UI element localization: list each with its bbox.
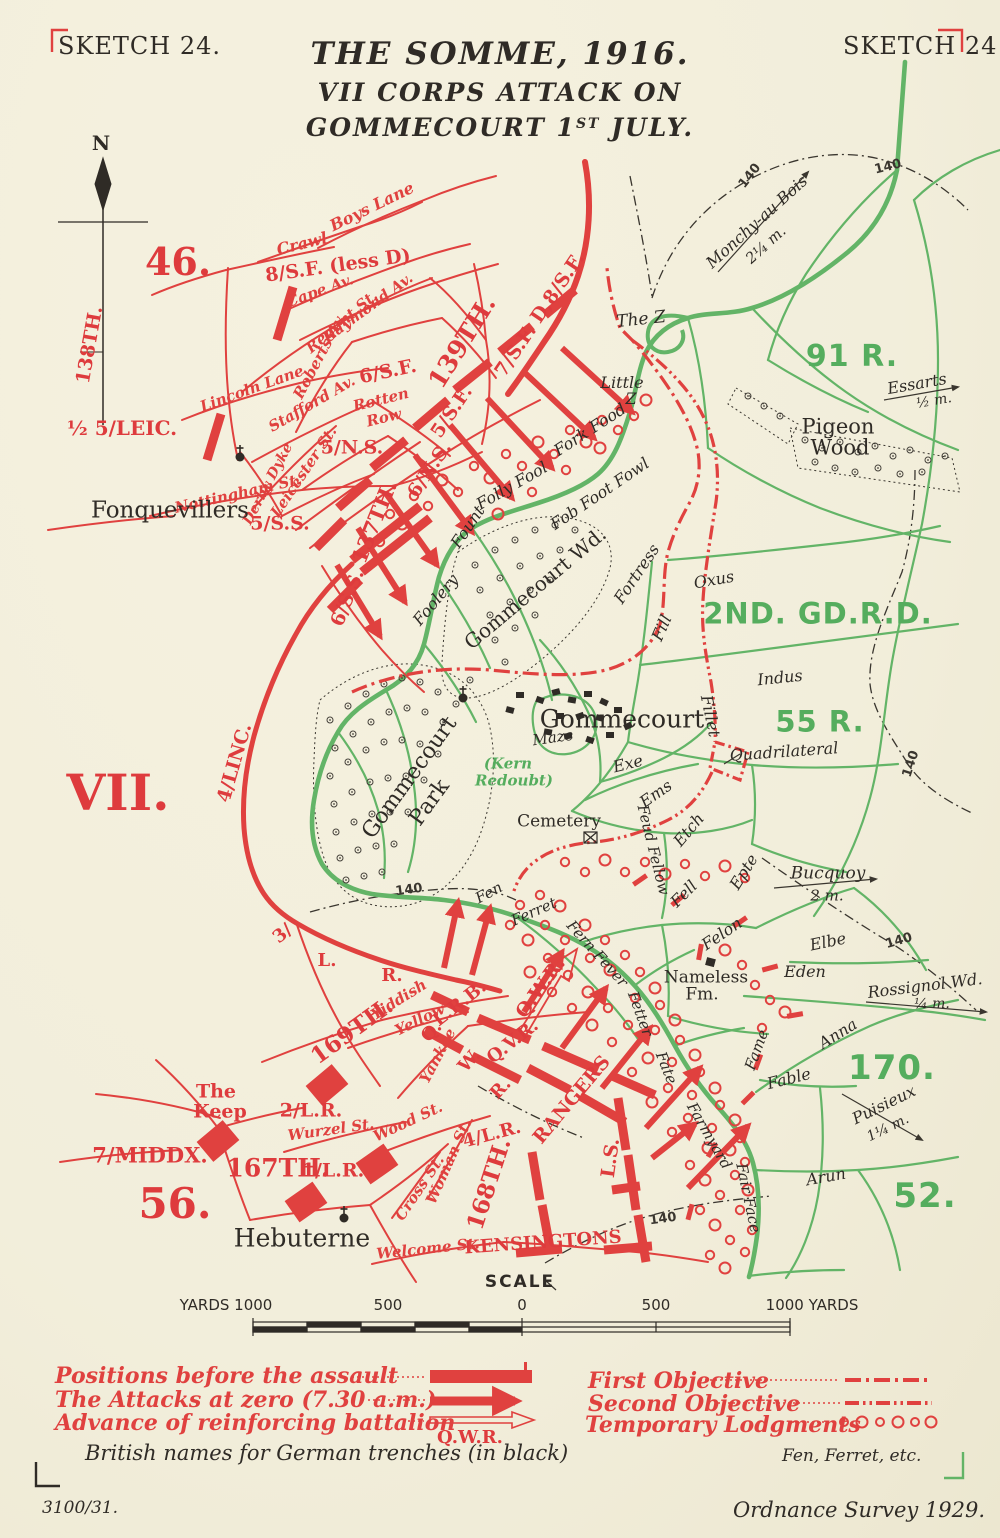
lodgment-circle <box>621 951 629 959</box>
lodgment-circle <box>583 987 594 998</box>
tree-dot <box>455 703 457 705</box>
map-label-eden: Eden <box>784 964 826 980</box>
tree-dot <box>504 661 506 663</box>
tree-dot <box>383 683 385 685</box>
british-road <box>226 268 238 460</box>
tree-dot <box>347 761 349 763</box>
lodgment-circle <box>561 858 569 866</box>
legend-black-names-note: British names for German trenches (in bl… <box>85 1441 568 1465</box>
map-label-vii: VII. <box>67 768 170 818</box>
german-road <box>814 200 938 916</box>
tree-dot <box>519 565 521 567</box>
german-road <box>674 1028 744 1046</box>
tree-dot <box>334 747 336 749</box>
lodgment-circle <box>604 1004 612 1012</box>
tree-dot <box>363 875 365 877</box>
map-label-fonquevillers: Fonquevillers <box>91 500 249 523</box>
scale-title: SCALE <box>485 1272 555 1292</box>
map-label-l: L. <box>318 952 337 970</box>
tree-dot <box>347 705 349 707</box>
position-bar <box>316 520 344 548</box>
lodgment-circle <box>701 872 709 880</box>
lodgment-circle <box>641 395 652 406</box>
subtitle-2-text-end: JULY. <box>600 113 694 142</box>
lodgment-circle <box>636 968 644 976</box>
tree-dot <box>329 719 331 721</box>
tree-dot <box>779 415 781 417</box>
position-bar <box>638 1215 646 1262</box>
position-bar <box>207 414 221 460</box>
battalion-square <box>285 1182 328 1223</box>
map-label-keep: Keep <box>193 1103 247 1122</box>
tree-dot <box>874 445 876 447</box>
tree-dot <box>365 693 367 695</box>
tree-dot <box>944 455 946 457</box>
attack-arrow <box>487 398 552 468</box>
legend-positions-bar <box>430 1370 532 1383</box>
german-road <box>748 1270 844 1276</box>
lodgment-circle <box>720 945 731 956</box>
tree-dot <box>494 639 496 641</box>
legend-positions-label: Positions before the assault <box>55 1363 398 1389</box>
map-label-167th: 167TH. <box>226 1156 329 1181</box>
house <box>584 691 592 697</box>
scale-bar <box>253 1318 790 1336</box>
lodgment-circle <box>595 443 606 454</box>
north-arrow <box>58 158 148 425</box>
church-symbol <box>236 453 245 462</box>
lodgment-circle <box>706 1251 714 1259</box>
map-label-r: R. <box>381 967 402 985</box>
red-dash <box>762 966 777 970</box>
tree-dot <box>747 395 749 397</box>
red-dash <box>633 875 646 884</box>
lodgment-circle <box>650 983 661 994</box>
subtitle-2-text: GOMMECOURT 1 <box>306 113 576 142</box>
position-bar <box>528 1068 570 1090</box>
tree-dot <box>514 627 516 629</box>
tree-dot <box>345 879 347 881</box>
house <box>516 692 524 698</box>
tree-dot <box>370 721 372 723</box>
tree-dot <box>365 749 367 751</box>
position-bar <box>532 1152 540 1200</box>
lodgment-circle <box>587 1020 598 1031</box>
subtitle-2-superscript: ST <box>576 116 601 132</box>
tree-dot <box>834 467 836 469</box>
legend-reinforcing-label: Advance of reinforcing battalion <box>55 1410 455 1436</box>
map-label-wood: Wood <box>811 438 870 459</box>
tree-dot <box>393 843 395 845</box>
lodgment-circle <box>628 1068 636 1076</box>
lodgment-circle <box>681 860 689 868</box>
tree-dot <box>474 564 476 566</box>
temporary-lodgment-circles <box>376 395 791 1274</box>
tree-dot <box>892 455 894 457</box>
lodgment-circle <box>690 1050 701 1061</box>
lodgment-circle <box>424 502 432 510</box>
tree-dot <box>909 449 911 451</box>
lodgment-circle <box>710 1083 721 1094</box>
german-road <box>914 150 1000 200</box>
tree-dot <box>469 679 471 681</box>
map-label-46: 46. <box>145 243 211 281</box>
tree-dot <box>329 775 331 777</box>
map-label-z: Z <box>625 391 636 407</box>
tree-dot <box>479 589 481 591</box>
tree-dot <box>534 529 536 531</box>
tree-dot <box>921 471 923 473</box>
cemetery-symbol <box>584 832 597 843</box>
map-label-52: 52. <box>893 1179 956 1213</box>
map-label-l-s: L.S. <box>599 1137 623 1179</box>
german-road <box>854 888 926 970</box>
lodgment-circle <box>608 1038 616 1046</box>
lodgment-circle <box>751 981 759 989</box>
lodgment-circle <box>614 426 622 434</box>
attack-arrow <box>444 902 458 968</box>
lodgment-circle <box>716 1191 724 1199</box>
map-label-m: ¼ m. <box>914 997 950 1011</box>
tree-dot <box>381 871 383 873</box>
lodgment-circle <box>621 868 629 876</box>
tree-dot <box>574 529 576 531</box>
tree-dot <box>854 471 856 473</box>
tree-dot <box>814 461 816 463</box>
church-symbol <box>340 1214 349 1223</box>
red-dash <box>787 1014 803 1017</box>
scale-yards-1000-left: YARDS 1000 <box>180 1296 273 1314</box>
church-symbol <box>459 694 468 703</box>
map-label-fm: Fm. <box>685 987 718 1004</box>
lodgment-circle <box>568 1004 576 1012</box>
tree-dot <box>369 781 371 783</box>
lodgment-circle <box>601 936 609 944</box>
lodgment-circle <box>688 1091 696 1099</box>
position-bar <box>610 1075 655 1095</box>
german-road <box>668 526 940 560</box>
print-reference: 3100/31. <box>42 1498 118 1518</box>
tree-dot <box>899 473 901 475</box>
lodgment-circle <box>700 1175 711 1186</box>
map-label-140: 140 <box>649 1211 678 1228</box>
tree-dot <box>437 691 439 693</box>
tree-dot <box>339 857 341 859</box>
lodgment-circle <box>720 1263 731 1274</box>
map-title: THE SOMME, 1916. <box>0 36 1000 72</box>
tree-dot <box>877 467 879 469</box>
lodgment-circle <box>502 450 510 458</box>
position-bar <box>338 480 370 508</box>
nameless-farm-symbol <box>705 957 716 967</box>
tree-dot <box>499 577 501 579</box>
map-label-cemetery: Cemetery <box>517 814 601 831</box>
tree-dot <box>375 845 377 847</box>
lodgment-circle <box>741 1248 749 1256</box>
tree-dot <box>333 803 335 805</box>
legend-lodgments-label: Temporary Lodgments <box>585 1412 861 1438</box>
lodgment-circle <box>528 488 536 496</box>
map-label-91-r: 91 R. <box>806 342 898 372</box>
german-road <box>756 1157 958 1172</box>
map-label-little: Little <box>600 375 643 391</box>
map-label-55-r: 55 R. <box>775 708 864 737</box>
tree-dot <box>539 555 541 557</box>
map-label-kern: (Kern <box>484 757 532 772</box>
map-label-bucquoy: Bucquoy <box>791 866 866 883</box>
house <box>505 706 514 714</box>
tree-dot <box>424 711 426 713</box>
map-label-pigeon: Pigeon <box>802 417 875 438</box>
lodgment-circle <box>525 967 536 978</box>
british-road <box>352 318 442 342</box>
tree-dot <box>514 539 516 541</box>
tree-dot <box>401 739 403 741</box>
map-subtitle-2: GOMMECOURT 1ST JULY. <box>0 113 1000 142</box>
tree-dot <box>357 849 359 851</box>
map-sheet: SKETCH 24. SKETCH 24 THE SOMME, 1916. VI… <box>0 0 1000 1538</box>
tree-dot <box>406 707 408 709</box>
map-label-2-l-r: 2/L.R. <box>280 1102 343 1121</box>
german-road <box>752 765 755 844</box>
lodgment-circle <box>523 935 534 946</box>
tree-dot <box>927 459 929 461</box>
tree-dot <box>419 681 421 683</box>
legend-fen-ferret-note: Fen, Ferret, etc. <box>782 1446 921 1466</box>
lodgment-circle <box>668 1128 676 1136</box>
tree-dot <box>388 711 390 713</box>
lodgment-circle <box>656 1001 664 1009</box>
red-dash <box>699 944 702 960</box>
position-bar <box>612 1186 640 1190</box>
tree-dot <box>387 777 389 779</box>
attack-arrow <box>472 908 490 975</box>
lodgment-circle <box>600 855 611 866</box>
source-attribution: Ordnance Survey 1929. <box>733 1498 985 1522</box>
lodgment-circle <box>562 466 570 474</box>
tree-dot <box>352 733 354 735</box>
red-dash <box>742 1092 753 1103</box>
lodgment-circle <box>696 1206 704 1214</box>
title-block: THE SOMME, 1916. VII CORPS ATTACK ON GOM… <box>0 0 1000 142</box>
lodgment-circle <box>533 437 544 448</box>
tree-dot <box>494 549 496 551</box>
tree-dot <box>335 831 337 833</box>
map-label-indus: Indus <box>757 668 804 689</box>
lodgment-circle <box>686 1161 694 1169</box>
map-label-170: 170. <box>848 1051 936 1085</box>
map-label-2-m: 2 m. <box>810 889 843 904</box>
north-letter: N <box>92 133 110 153</box>
map-label-redoubt: Redoubt) <box>475 774 553 789</box>
scale-500-right: 500 <box>642 1296 671 1314</box>
tree-dot <box>353 821 355 823</box>
map-label-56: 56. <box>138 1183 211 1225</box>
scale-500-left: 500 <box>374 1296 403 1314</box>
map-subtitle-1: VII CORPS ATTACK ON <box>0 78 1000 107</box>
scale-yards-1000-right: 1000 YARDS <box>766 1296 859 1314</box>
map-label-140: 140 <box>395 882 424 899</box>
lodgment-circle <box>726 1236 734 1244</box>
scale-zero: 0 <box>517 1296 527 1314</box>
map-label-the: The <box>196 1083 236 1102</box>
tree-dot <box>534 614 536 616</box>
lodgment-circle <box>720 861 731 872</box>
lodgment-circle <box>581 868 589 876</box>
map-label-hebuterne: Hebuterne <box>234 1226 370 1251</box>
map-label-7-middx: 7/MIDDX. <box>92 1145 207 1166</box>
lodgment-circle <box>710 1220 721 1231</box>
tree-dot <box>763 405 765 407</box>
tree-dot <box>383 741 385 743</box>
tree-dot <box>804 439 806 441</box>
lodgment-circle <box>470 462 478 470</box>
tree-dot <box>351 791 353 793</box>
map-label-2nd-gd-r-d: 2ND. GD.R.D. <box>703 600 933 629</box>
map-label-5-leic: ½ 5/LEIC. <box>67 418 177 438</box>
